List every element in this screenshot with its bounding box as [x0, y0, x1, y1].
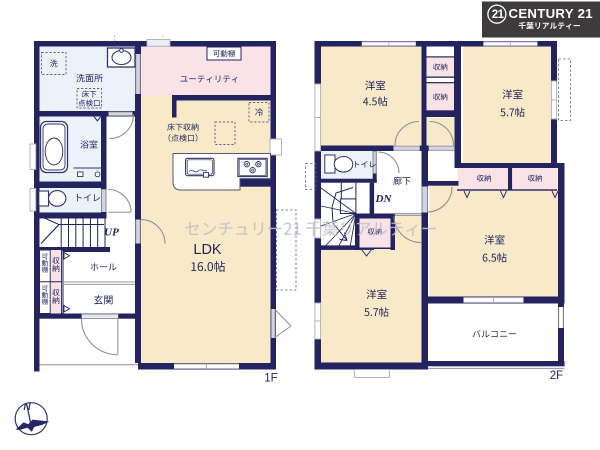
- svg-text:1F: 1F: [264, 373, 277, 385]
- svg-text:CENTURY 21: CENTURY 21: [509, 6, 593, 21]
- svg-text:UP: UP: [104, 226, 119, 238]
- svg-text:21: 21: [492, 9, 505, 21]
- svg-text:N: N: [23, 402, 31, 413]
- svg-text:2F: 2F: [550, 370, 563, 382]
- svg-text:DN: DN: [375, 193, 393, 205]
- svg-text:LDK: LDK: [193, 242, 222, 258]
